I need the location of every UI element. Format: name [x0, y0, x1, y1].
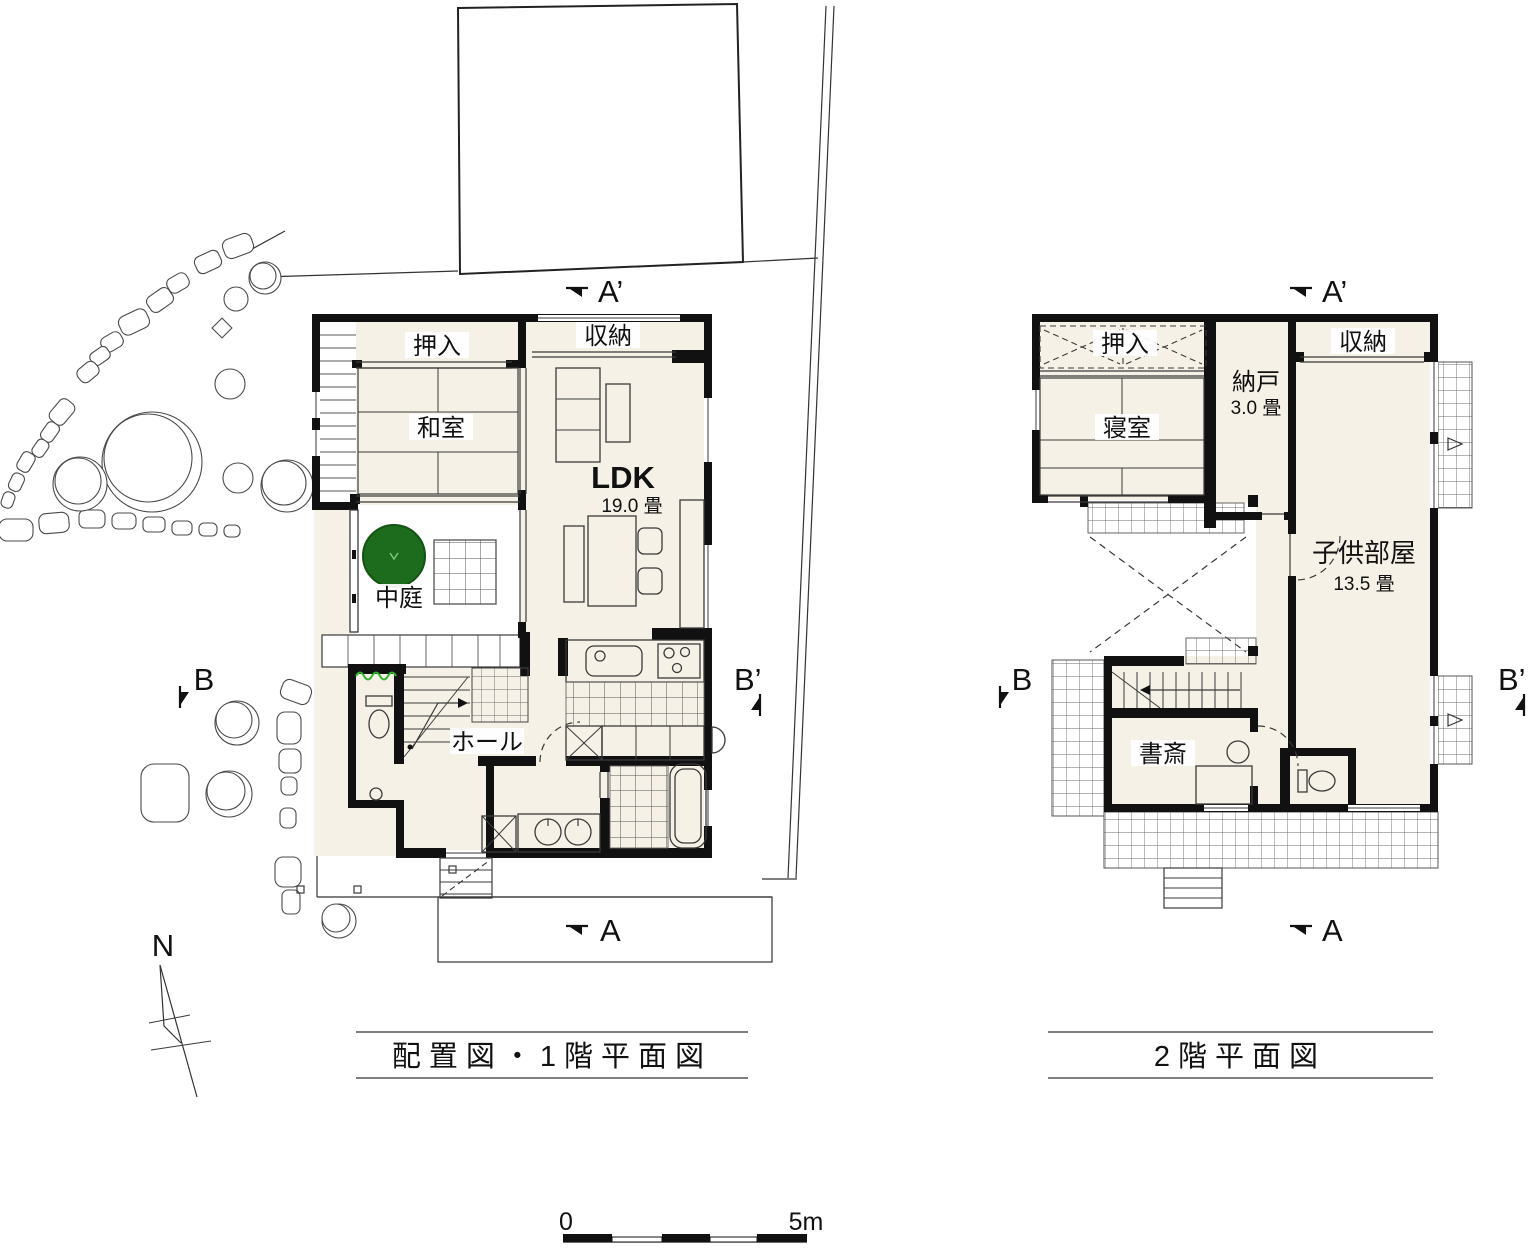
property-line: [263, 271, 458, 277]
floor1-plan: 押入 和室 収納 LDK 19.0 畳 中庭 ホール A’ A B B’: [180, 274, 762, 948]
garden-stone: [224, 525, 240, 537]
tree-icon: [215, 369, 245, 399]
room-label-hall: ホール: [451, 729, 523, 756]
floor2-base-south: [1104, 656, 1256, 808]
room-label-kodomobeya: 子供部屋: [1312, 538, 1416, 568]
tree-icon: [207, 772, 245, 810]
room-label-washitsu: 和室: [417, 415, 465, 442]
room-label-ldk: LDK: [591, 460, 655, 495]
stepping-stone: [275, 857, 301, 887]
garden-stone: [199, 523, 217, 536]
tree-icon: [262, 461, 306, 505]
tree-icon: [216, 702, 252, 738]
courtyard-paving: [434, 540, 496, 604]
road-line: [788, 6, 826, 878]
title-block-2f: 2階平面図: [1048, 1032, 1433, 1078]
section-flag-a-1f: [566, 926, 588, 935]
scale-zero-label: 0: [559, 1208, 573, 1236]
room-label-nando: 納戸: [1232, 369, 1280, 396]
section-marker-b-prime-2f: B’: [1498, 662, 1526, 697]
void-grid-small: [1186, 638, 1256, 664]
genkan-tile: [472, 668, 528, 722]
floor2-plan: 押入 寝室 納戸 3.0 畳 収納 子供部屋 13.5 畳 書斎 A’ A B …: [1000, 274, 1526, 948]
room-size-nando: 3.0 畳: [1231, 398, 1282, 419]
room-size-kodomobeya: 13.5 畳: [1333, 574, 1394, 595]
tree-icon: [104, 414, 192, 502]
exterior-steps: [1164, 868, 1222, 908]
scale-five-label: 5m: [789, 1208, 824, 1236]
garden-stone: [220, 231, 255, 260]
room-label-shinshitsu: 寝室: [1103, 415, 1151, 442]
garden-stone: [7, 471, 26, 493]
section-marker-b-1f: B: [194, 662, 215, 697]
north-arrow: N: [149, 928, 211, 1097]
section-marker-a-prime-2f: A’: [1322, 274, 1347, 309]
garden-stone: [192, 248, 223, 275]
section-flag-b-prime-2f: [1515, 694, 1524, 716]
tree-icon: [223, 463, 253, 493]
section-marker-a-2f: A: [1322, 913, 1343, 948]
courtyard-tree-icon: [363, 525, 425, 587]
garden-stone: [112, 513, 136, 529]
garden-stone: [116, 307, 152, 338]
section-flag-a-prime-1f: [566, 288, 588, 297]
garden-stone: [172, 521, 192, 535]
garden-stone: [0, 490, 16, 509]
section-marker-b-2f: B: [1012, 662, 1033, 697]
north-label: N: [152, 928, 174, 963]
bath-floor-tile: [610, 766, 668, 848]
room-label-shuno-2f: 収納: [1339, 329, 1387, 356]
neighbor-building: [458, 4, 743, 274]
entry-porch: [440, 858, 492, 898]
section-flag-b-prime-1f: [751, 694, 760, 716]
stepping-stone: [277, 712, 301, 744]
balcony-right-bottom: [1438, 676, 1472, 764]
room-label-oshiire-1f: 押入: [413, 333, 461, 360]
courtyard-fence: [350, 510, 358, 632]
room-size-ldk: 19.0 畳: [601, 496, 662, 517]
drawing-canvas: N: [0, 0, 1536, 1248]
deck: [322, 635, 520, 667]
scale-bar: 0 5m: [559, 1208, 823, 1242]
tree-icon: [224, 287, 248, 311]
room-label-oshiire-2f: 押入: [1101, 331, 1149, 358]
title-block-1f: 配置図・1階平面図: [356, 1032, 748, 1078]
tree-icon: [55, 458, 101, 504]
room-label-nakaniwa: 中庭: [375, 585, 423, 612]
veranda-west: [320, 322, 356, 502]
garden-stone: [38, 512, 70, 535]
road-line: [796, 6, 834, 878]
section-flag-b-2f: [1000, 686, 1009, 708]
stepping-stone: [281, 777, 297, 795]
section-marker-a-1f: A: [600, 913, 621, 948]
section-flag-b-1f: [180, 686, 189, 708]
room-label-shosai: 書斎: [1139, 741, 1187, 768]
floorplan-drawing: N: [0, 0, 1536, 1248]
stepping-stone: [279, 749, 301, 773]
plan2-title: 2階平面図: [1154, 1041, 1326, 1073]
balcony-west: [1052, 660, 1104, 816]
plan1-title: 配置図・1階平面図: [392, 1041, 712, 1073]
section-marker-b-prime-1f: B’: [734, 662, 762, 697]
kitchen-floor-tile: [566, 682, 704, 726]
balcony-right-top: [1438, 362, 1472, 508]
section-marker-a-prime-1f: A’: [598, 274, 623, 309]
bay-fixture: [712, 727, 725, 753]
tree-icon: [250, 263, 276, 289]
room-label-shuno-1f: 収納: [584, 323, 632, 350]
balcony-south: [1104, 812, 1438, 868]
garden-stone: [79, 510, 105, 528]
garden-boulder: [141, 764, 189, 822]
tree-icon: [322, 904, 350, 932]
stepping-stone: [278, 677, 313, 706]
site-marker: [354, 886, 361, 893]
garden-stone: [143, 517, 165, 532]
property-line: [743, 258, 818, 262]
section-flag-a-2f: [1290, 926, 1312, 935]
section-flag-a-prime-2f: [1290, 288, 1312, 297]
stepping-stone: [280, 808, 296, 828]
garden-stone: [212, 318, 232, 338]
garden-stone: [0, 519, 33, 541]
